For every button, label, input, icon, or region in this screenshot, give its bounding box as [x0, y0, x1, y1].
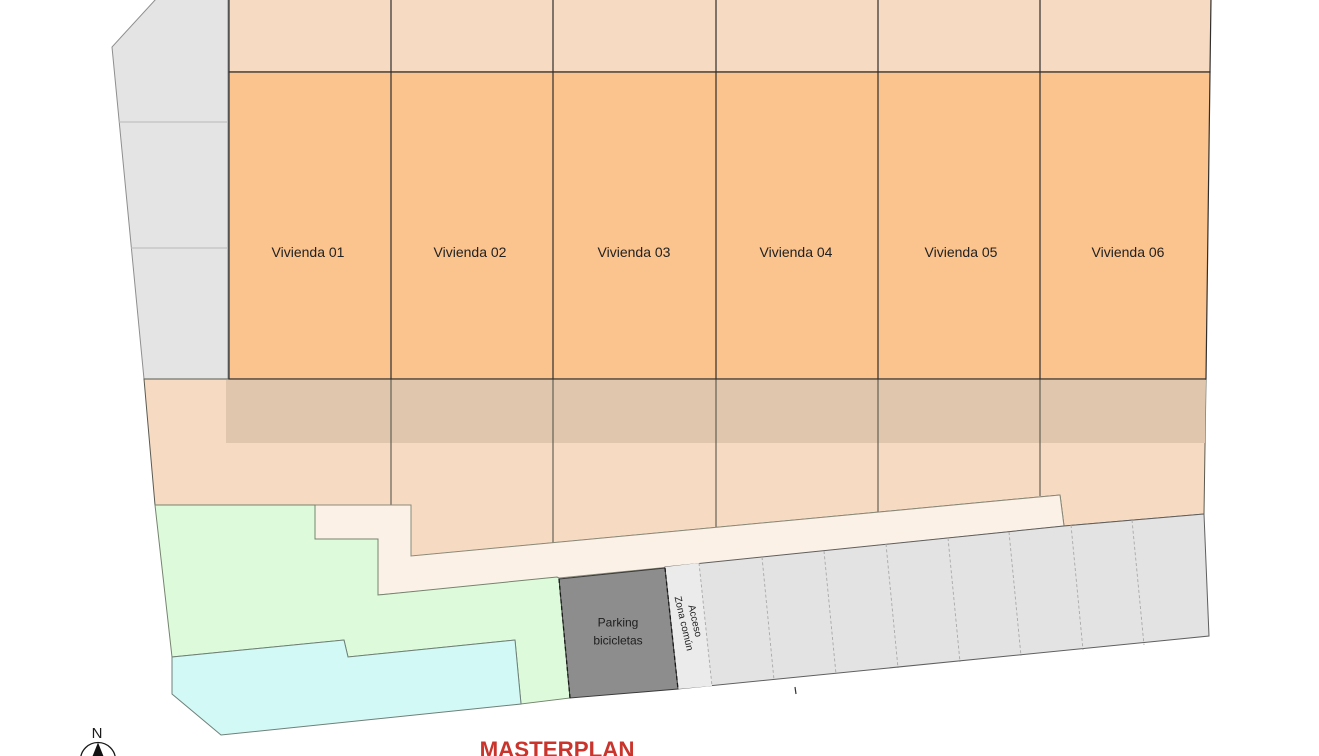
svg-text:bicicletas: bicicletas [593, 634, 642, 648]
svg-text:MASTERPLAN: MASTERPLAN [480, 737, 635, 756]
svg-text:Vivienda 04: Vivienda 04 [760, 244, 833, 260]
svg-text:N: N [92, 725, 103, 742]
svg-text:Vivienda 03: Vivienda 03 [598, 244, 671, 260]
svg-text:Vivienda 02: Vivienda 02 [434, 244, 507, 260]
svg-text:Vivienda 05: Vivienda 05 [925, 244, 998, 260]
svg-text:Parking: Parking [598, 616, 639, 630]
svg-text:Vivienda 01: Vivienda 01 [272, 244, 345, 260]
svg-text:Vivienda 06: Vivienda 06 [1092, 244, 1165, 260]
